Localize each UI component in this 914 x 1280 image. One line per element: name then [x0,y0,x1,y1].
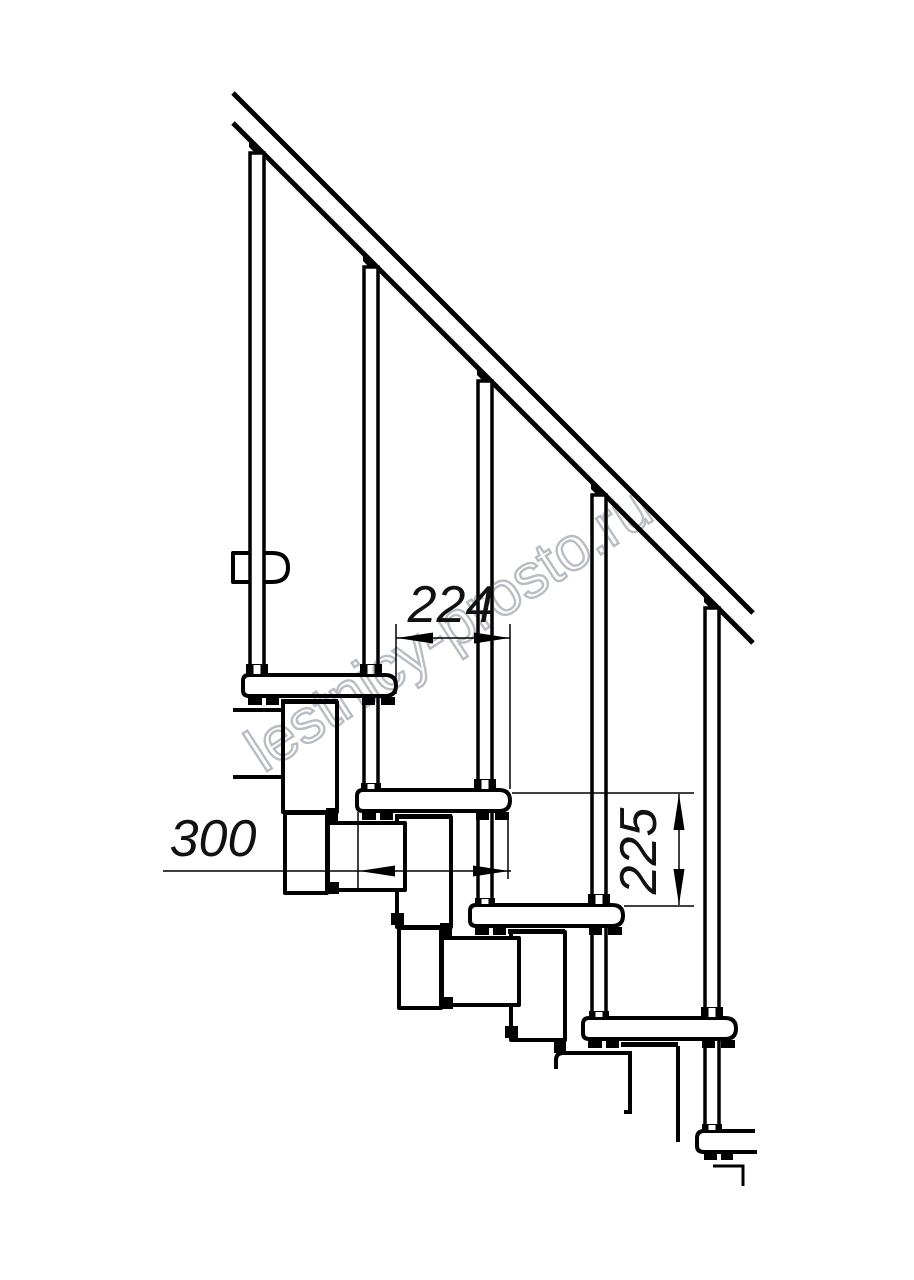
dim-label-tread-depth: 300 [170,810,257,868]
tread-3 [470,905,623,926]
module-block-3-partial [556,1053,630,1112]
tread-2 [357,790,510,811]
module-block-2 [442,938,519,1005]
dim-label-rise: 225 [610,807,668,896]
tread-4 [583,1018,736,1039]
module-column-1-lower [285,813,327,893]
tread-5-module-partial [713,1166,743,1186]
baluster-5 [705,608,719,1131]
technical-drawing-page: lestnicy-prosto.ru 224 300 225 [0,0,914,1280]
dim-label-going: 224 [407,576,495,634]
arrow-rise-up [674,794,685,830]
staircase-technical-drawing: lestnicy-prosto.ru 224 300 225 [0,0,914,1280]
module-column-2-lower [399,928,441,1008]
arrow-rise-down [674,869,685,905]
baluster-1 [250,153,264,675]
module-block-1 [328,823,405,890]
